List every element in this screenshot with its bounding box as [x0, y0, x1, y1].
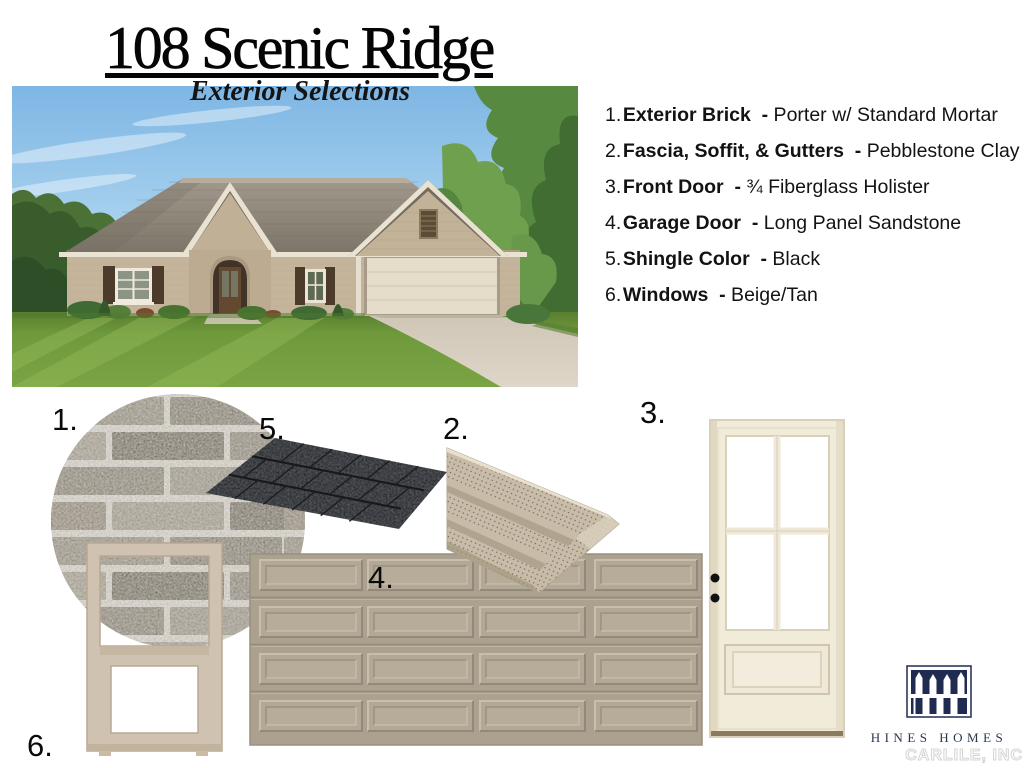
svg-text:2.: 2. — [443, 411, 469, 446]
svg-text:6.: 6. — [27, 728, 53, 763]
svg-text:1.: 1. — [52, 402, 78, 437]
svg-text:3.: 3. — [640, 395, 666, 430]
svg-text:CARLILE, INC: CARLILE, INC — [905, 747, 1023, 764]
svg-text:5.: 5. — [259, 411, 285, 446]
svg-text:HINES HOMES: HINES HOMES — [871, 730, 1008, 745]
svg-text:4.: 4. — [368, 560, 394, 595]
